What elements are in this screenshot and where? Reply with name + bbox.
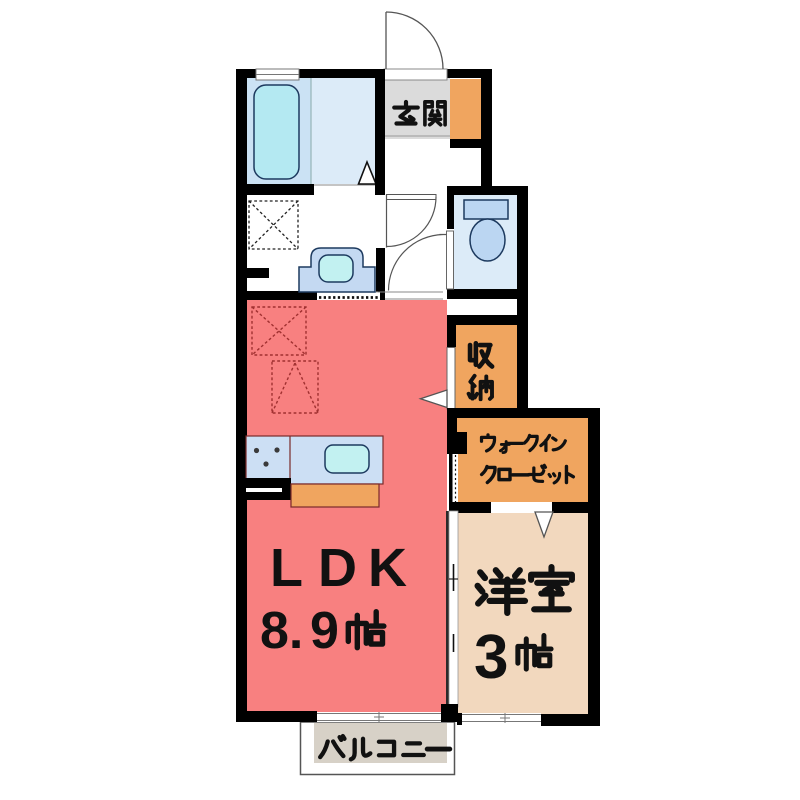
svg-text:D: D <box>318 538 357 598</box>
svg-text:3: 3 <box>474 623 508 692</box>
svg-text:L: L <box>270 538 303 598</box>
svg-text:8.: 8. <box>260 602 303 660</box>
svg-text:9: 9 <box>310 602 339 660</box>
svg-text:K: K <box>368 538 407 598</box>
